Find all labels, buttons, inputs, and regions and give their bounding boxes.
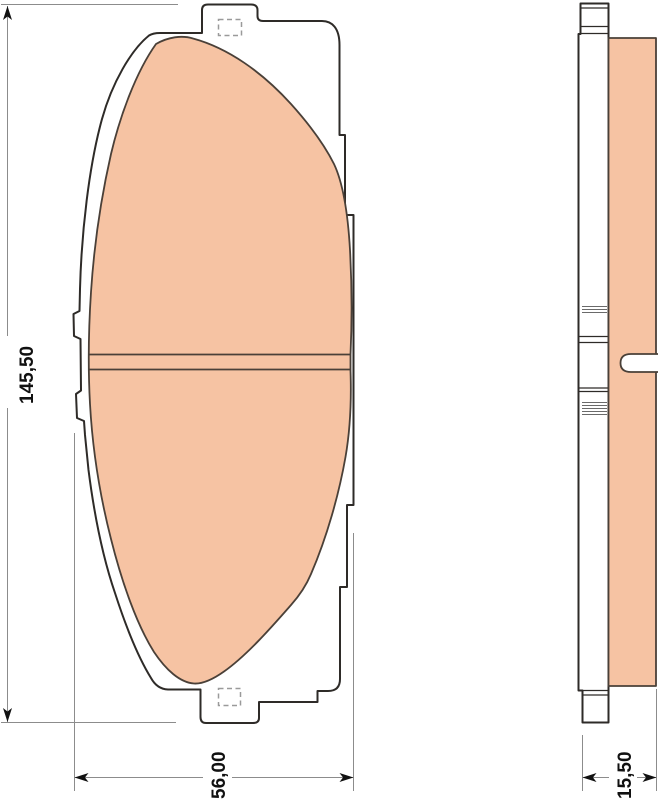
height-dimension-label: 145,50 — [17, 346, 38, 404]
side-view — [579, 4, 659, 723]
side-wear-slot — [621, 354, 659, 372]
side-backing-plate — [579, 4, 609, 723]
width-dimension-label: 56,00 — [209, 751, 230, 799]
front-view — [74, 5, 354, 724]
brake-pad-technical-drawing: 145,50 56,00 15,50 — [0, 0, 661, 800]
thickness-dimension-label: 15,50 — [615, 751, 636, 799]
